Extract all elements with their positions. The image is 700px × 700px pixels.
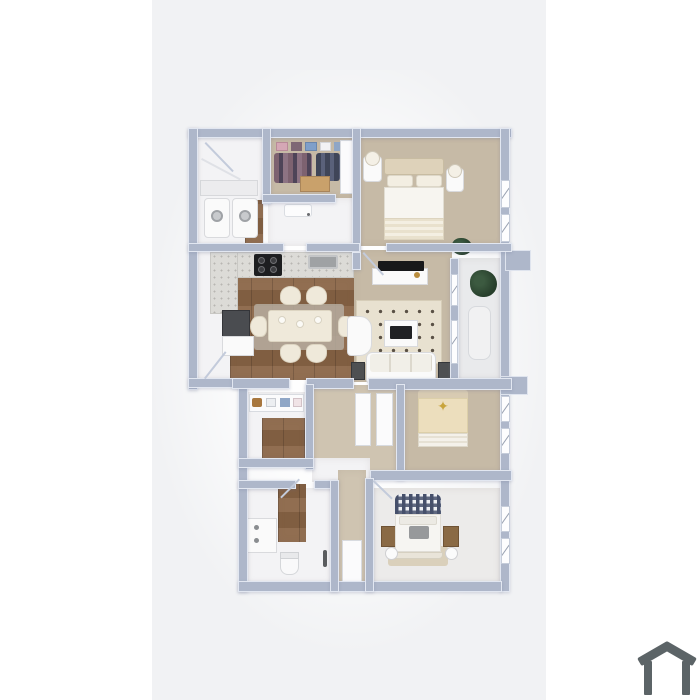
master-pillow-right: [416, 175, 442, 187]
master-pillow-left: [387, 175, 413, 187]
washer-door-icon: [211, 210, 223, 222]
kitchen-cabinet-white: [222, 336, 254, 356]
master-window-1: [501, 180, 510, 208]
wall-bedroom2-bottom: [370, 470, 512, 481]
coat-closet-shelf: [200, 180, 258, 196]
wall-closet-master: [352, 128, 361, 252]
wall-outer-top: [188, 128, 512, 138]
balcony-window-2: [451, 320, 458, 364]
wall-bathroom-right: [330, 480, 339, 592]
balcony-window-1: [451, 274, 458, 306]
door-knob-icon: [307, 213, 310, 216]
bed2-star-ornament: ✦: [434, 400, 452, 414]
house-icon: [638, 636, 696, 696]
linen-shelf-1: [355, 393, 371, 446]
bathroom-wood-strip: [278, 484, 306, 542]
toilet-tank: [280, 552, 299, 559]
bedroom3-window-1: [501, 506, 510, 532]
place-setting-2: [296, 320, 304, 328]
wall-entry-closet: [262, 128, 271, 204]
closet-dresser: [300, 176, 330, 192]
armchair: [347, 316, 372, 356]
bathroom-vanity: [247, 518, 277, 553]
bed3-nightstand-right: [443, 526, 459, 547]
bedroom2-window-1: [501, 396, 510, 422]
wall-kitchen-bottom: [232, 378, 290, 389]
ac-unit-block: [505, 250, 531, 271]
dining-chair-bot2: [306, 344, 327, 363]
wall-hall-bedroom2: [396, 384, 405, 480]
coffee-table-tray: [390, 326, 412, 339]
dressing-item-1: [252, 398, 262, 407]
dark-cabinet: [222, 310, 250, 338]
master-blanket-pleats: [384, 218, 444, 240]
apartment-floorplan: ✦: [188, 128, 512, 592]
dining-chair-top2: [306, 286, 327, 305]
burner-3: [258, 266, 265, 273]
burner-4: [270, 266, 277, 273]
master-headboard: [384, 158, 444, 175]
wall-bedroom3-left: [365, 478, 374, 592]
linen-shelf-small: [342, 540, 362, 584]
bed3-gray-cushion: [409, 526, 429, 539]
wall-band-divider-mid: [306, 243, 360, 252]
bed3-pillow: [399, 516, 437, 525]
wall-living-bottom: [368, 378, 512, 390]
kitchen-sink: [308, 255, 338, 269]
house-leg-right: [682, 661, 690, 695]
bed3-footboard: [393, 552, 443, 559]
dressing-item-3: [280, 398, 290, 407]
dressing-item-2: [266, 398, 276, 407]
closet-box-blue: [305, 142, 317, 151]
house-roof-right: [662, 641, 697, 666]
dining-chair-left: [250, 316, 267, 337]
wall-outer-left: [188, 128, 198, 390]
tv: [378, 261, 424, 271]
dressing-item-4: [293, 398, 302, 407]
wall-band-divider-left: [188, 243, 284, 252]
bed2-foot-sheet: [418, 433, 468, 447]
faucet-1: [254, 525, 259, 530]
bedroom2-window-2: [501, 428, 510, 454]
dressing-wood-floor: [262, 418, 306, 460]
balcony-plant: [470, 270, 497, 297]
wall-closet-hall: [262, 194, 336, 203]
linen-shelf-2: [376, 393, 393, 446]
wall-band-divider-right: [386, 243, 512, 252]
accessory-stand: [323, 550, 327, 567]
closet-box-pink: [276, 142, 288, 151]
place-setting-1: [278, 316, 286, 324]
lounge-chair: [468, 306, 491, 360]
master-lamp-left: [365, 151, 380, 166]
wall-bathroom-top: [238, 480, 296, 489]
burner-2: [270, 257, 277, 264]
bed3-gingham-blanket: [395, 494, 441, 514]
faucet-2: [254, 538, 259, 543]
wall-dressing-bottom: [238, 458, 314, 468]
closet-box-plum: [291, 142, 302, 151]
master-lamp-right: [448, 164, 462, 178]
console-decor: [414, 272, 420, 278]
kitchen-counter-left: [210, 252, 238, 314]
bed2-headboard: [418, 390, 468, 398]
dryer-door-icon: [239, 210, 251, 222]
closet-box-white: [320, 142, 331, 151]
sofa-cushions: [370, 354, 432, 372]
place-setting-3: [314, 316, 322, 324]
master-window-2: [501, 214, 510, 242]
bed3-lamp-right: [445, 547, 458, 560]
dining-chair-top1: [280, 286, 301, 305]
burner-1: [258, 257, 265, 264]
dining-chair-bot1: [280, 344, 301, 363]
bedroom3-window-2: [501, 538, 510, 564]
wall-kitchen-living-stub: [352, 252, 361, 270]
house-leg-left: [644, 661, 652, 695]
floorplan-render: ✦: [0, 0, 700, 700]
bed3-lamp-left: [385, 547, 398, 560]
